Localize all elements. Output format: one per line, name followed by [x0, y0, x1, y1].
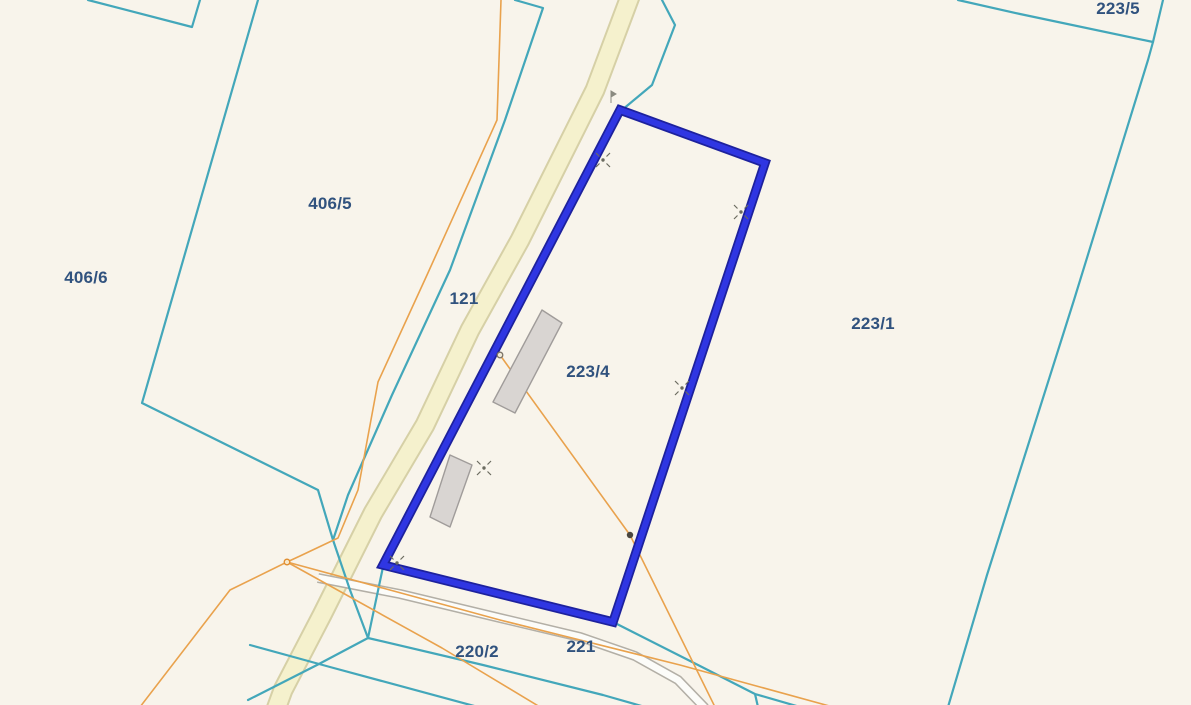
- map-graphics: [0, 0, 1191, 705]
- parcel-label-121: 121: [450, 289, 479, 309]
- parcel-label-223-1: 223/1: [851, 314, 895, 334]
- parcel-label-406-5: 406/5: [308, 194, 352, 214]
- utility-pole-marker: [497, 352, 503, 358]
- parcel-label-406-6: 406/6: [64, 268, 108, 288]
- parcel-label-223-5: 223/5: [1096, 0, 1140, 19]
- parcel-label-223-4: 223/4: [566, 362, 610, 382]
- utility-pole-marker: [627, 532, 633, 538]
- utility-pole-marker: [284, 559, 290, 565]
- parcel-label-220-2: 220/2: [455, 642, 499, 662]
- parcel-label-221: 221: [567, 637, 596, 657]
- map-canvas[interactable]: 223/5 406/5 406/6 121 223/4 223/1 220/2 …: [0, 0, 1191, 705]
